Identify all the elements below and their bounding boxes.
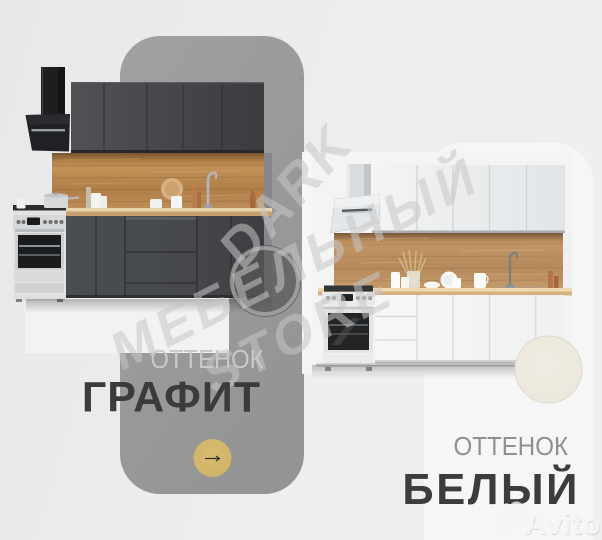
svg-text:БЕЛЫЙ: БЕЛЫЙ — [402, 463, 580, 514]
svg-text:ОТТЕНОК: ОТТЕНОК — [454, 433, 569, 461]
svg-text:Avito: Avito — [525, 508, 601, 540]
svg-text:ГРАФИТ: ГРАФИТ — [82, 374, 261, 422]
svg-text:ОТТЕНОК: ОТТЕНОК — [151, 346, 264, 374]
